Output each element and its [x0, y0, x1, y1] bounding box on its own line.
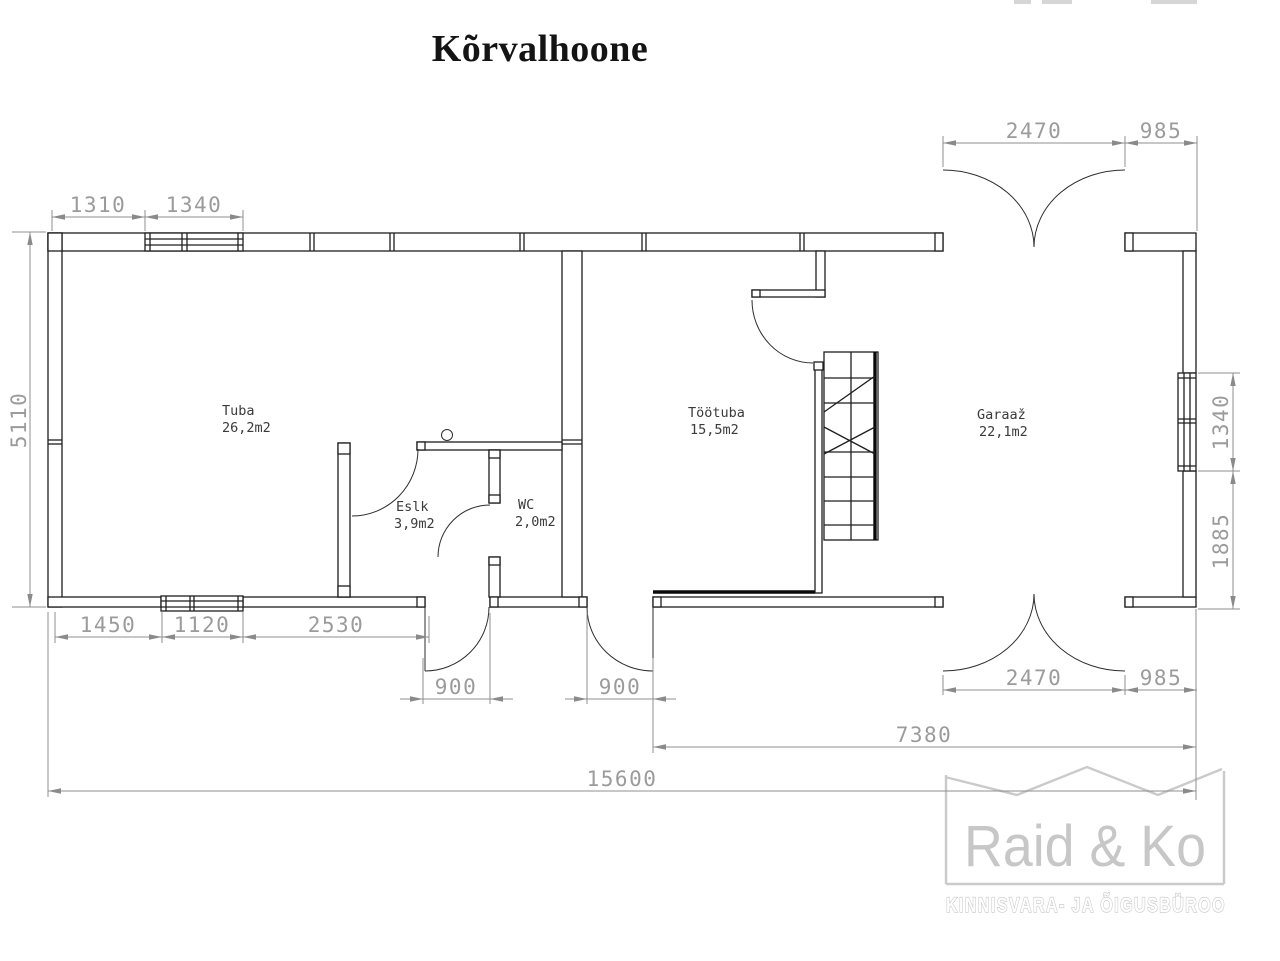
dim-arrow [1230, 458, 1235, 471]
wall-eslk-top [417, 442, 562, 450]
door-jamb [417, 597, 425, 607]
dim-arrow [243, 634, 256, 639]
dim-arrow [1125, 687, 1138, 692]
logo-tagline: KINNISVARA- JA ÕIGUSBÜROO [946, 893, 1226, 917]
window-top [145, 233, 243, 251]
dim-label: 1340 [1209, 394, 1233, 451]
dim-arrow [48, 788, 61, 793]
door-jamb [935, 597, 943, 607]
wall-tootuba-garage [752, 290, 825, 297]
dim-arrow [1183, 788, 1196, 793]
outer-wall-right [1183, 471, 1196, 597]
window-right [1178, 373, 1196, 471]
dim-label: 2470 [1006, 666, 1063, 690]
dim-label: 7380 [896, 723, 953, 747]
dim-arrow [132, 214, 145, 219]
dim-label: 985 [1140, 119, 1182, 143]
dim-label: 2470 [1006, 119, 1063, 143]
room-area-tootuba: 15,5m2 [690, 422, 739, 438]
dim-arrow [943, 687, 956, 692]
dim-arrow [1230, 373, 1235, 386]
outer-wall-top-garage [1125, 233, 1196, 251]
room-label-garaaz: Garaaž [977, 407, 1026, 423]
dim-arrow [149, 634, 162, 639]
door-arc-tootuba [752, 300, 813, 363]
garage-door-arc [1034, 170, 1125, 247]
wall-end-detail [489, 557, 500, 565]
dim-label: 15600 [587, 767, 658, 791]
door-arc-wc [438, 505, 490, 557]
top-edge-artifact [1014, 0, 1031, 4]
garage-door-arc [943, 170, 1034, 247]
door-jamb [653, 597, 661, 607]
room-label-tootuba: Töötuba [688, 405, 745, 421]
dim-arrow [1112, 140, 1125, 145]
door-jamb [490, 597, 498, 607]
circle-symbol [442, 430, 453, 441]
logo-name: Raid & Ko [964, 814, 1206, 879]
wall-eslk-left [338, 443, 350, 597]
wall-tuba-tootuba [562, 251, 582, 597]
dim-arrow [1230, 596, 1235, 609]
floor-plan-page: Kõrvalhoone Raid & KoKINNISVARA- JA ÕIGU… [0, 0, 1280, 961]
garage-door-arc [1034, 594, 1125, 671]
wall-end-detail [489, 495, 500, 503]
wall-end-detail [338, 586, 350, 597]
dim-arrow [416, 634, 429, 639]
dim-arrow [1183, 744, 1196, 749]
room-label-wc: WC [518, 497, 534, 513]
dim-arrow [410, 696, 423, 701]
top-edge-artifact [1042, 0, 1072, 4]
dim-arrow [230, 634, 243, 639]
wall-end-detail [752, 290, 760, 297]
outer-wall-bottom-garage [1125, 597, 1196, 607]
dim-label: 5110 [7, 392, 31, 449]
dim-arrow [27, 232, 32, 245]
door-jamb [1125, 233, 1133, 251]
outer-wall-left [48, 233, 62, 607]
dim-label: 1340 [166, 193, 223, 217]
room-area-tuba: 26,2m2 [222, 420, 271, 436]
wall-end-detail [417, 442, 425, 450]
dim-arrow [1184, 140, 1197, 145]
room-label-eslk: Eslk [396, 499, 429, 515]
dim-arrow [653, 696, 666, 701]
door-leaf [814, 362, 823, 370]
room-area-wc: 2,0m2 [515, 514, 556, 530]
door-arc-exterior [425, 607, 489, 671]
door-jamb [935, 233, 943, 251]
room-area-garaaz: 22,1m2 [979, 424, 1028, 440]
dim-label: 1310 [70, 193, 127, 217]
wall-end-detail [338, 443, 350, 454]
wall-end-detail [489, 450, 500, 458]
stairs-break-line [824, 376, 875, 412]
dim-arrow [653, 744, 666, 749]
floor-plan-svg: Raid & KoKINNISVARA- JA ÕIGUSBÜROOTuba26… [0, 0, 1280, 961]
garage-door-arc [943, 594, 1034, 671]
top-edge-artifact [1151, 0, 1197, 4]
dim-arrow [1230, 471, 1235, 484]
dim-arrow [574, 696, 587, 701]
room-area-eslk: 3,9m2 [394, 516, 435, 532]
dim-arrow [490, 696, 503, 701]
outer-wall-bottom [48, 597, 161, 607]
dim-arrow [943, 140, 956, 145]
door-jamb [579, 597, 587, 607]
room-label-tuba: Tuba [222, 403, 255, 419]
door-arc-exterior [587, 607, 653, 671]
dim-arrow [1112, 687, 1125, 692]
dim-label: 1450 [80, 613, 137, 637]
dim-arrow [27, 594, 32, 607]
dim-arrow [1184, 687, 1197, 692]
outer-wall-right [1183, 251, 1196, 373]
dim-label: 2530 [308, 613, 365, 637]
dim-label: 1885 [1209, 513, 1233, 570]
dim-label: 900 [435, 675, 477, 699]
outer-wall-bottom [243, 597, 425, 607]
dim-label: 1120 [174, 613, 231, 637]
dim-arrow [145, 214, 158, 219]
outer-wall-bottom [653, 597, 943, 607]
dim-arrow [230, 214, 243, 219]
dim-label: 985 [1140, 666, 1182, 690]
dim-arrow [55, 634, 68, 639]
wall-corner-detail [48, 233, 62, 251]
door-jamb [1125, 597, 1133, 607]
window-bottom [161, 596, 243, 611]
dim-arrow [52, 214, 65, 219]
dim-arrow [1125, 140, 1138, 145]
wall-tootuba-garage [815, 368, 822, 593]
dim-label: 900 [599, 675, 641, 699]
outer-wall-bottom [490, 597, 587, 607]
